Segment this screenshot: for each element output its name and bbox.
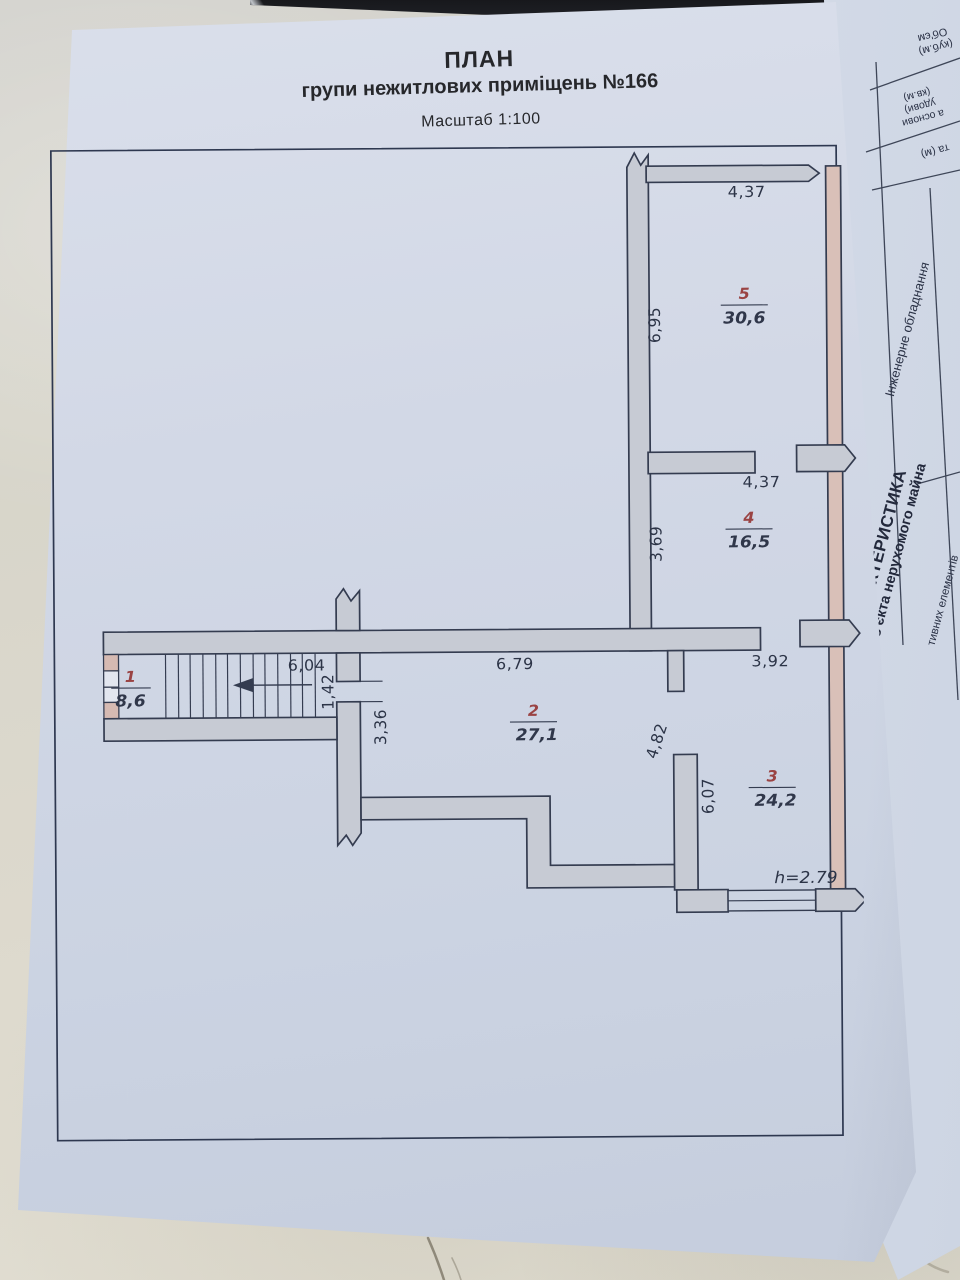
dim-opening-width: 3,92	[751, 652, 789, 671]
stair-arrow-head	[233, 678, 253, 692]
wall-room5-top	[646, 165, 819, 182]
table-row-line	[872, 170, 960, 190]
room4-number: 4	[742, 508, 754, 527]
window-room3-midline	[728, 900, 816, 901]
room3-number: 3	[766, 767, 777, 786]
room2-number: 2	[528, 701, 539, 720]
dim-room4-width: 4,37	[743, 472, 781, 491]
dim-room4-depth: 3,69	[646, 526, 666, 562]
room1-area: 8,6	[115, 692, 146, 711]
wall-room3-left	[674, 754, 698, 890]
window-pier-room5	[797, 445, 856, 472]
wall-rooms5-4-divider	[648, 452, 755, 474]
dim-passage-width: 1,42	[318, 674, 338, 710]
wall-room2-bottom	[361, 795, 677, 889]
dim-ceiling-height: h=2.79	[774, 868, 837, 887]
room2-area: 27,1	[516, 725, 558, 744]
wall-room3-bottom-left	[677, 890, 728, 913]
wall-rooms23-stub	[668, 651, 684, 692]
dim-room2-right-depth: 4,82	[641, 721, 671, 761]
plan-title-block: ПЛАН групи нежитлових приміщень №166 Мас…	[229, 39, 731, 137]
wall-stairhall-bottom	[104, 717, 337, 741]
exterior-wall-right	[826, 166, 846, 891]
dim-room3-left-depth: 6,07	[698, 778, 718, 814]
wall-room2-left-lower	[337, 702, 362, 846]
dim-room5-width: 4,37	[728, 182, 766, 201]
stair-window-block	[104, 655, 119, 671]
photo-scene: (куб.м) Об'єм а основи удови) (кв.м) та …	[0, 0, 960, 1280]
wall-rooms45-left	[627, 153, 652, 651]
wall-room2-left-upper	[336, 653, 360, 682]
dim-corridor-length: 6,04	[288, 656, 326, 675]
room1-number: 1	[125, 667, 136, 686]
wall-corridor-top	[103, 628, 760, 655]
window-pier-room4	[800, 620, 860, 647]
wall-stub-break	[336, 589, 360, 631]
room3-area: 24,2	[754, 791, 796, 810]
room5-area: 30,6	[723, 309, 766, 328]
room5-number: 5	[739, 284, 750, 303]
wall-room3-bottom-right	[816, 889, 866, 912]
room4-area: 16,5	[728, 533, 770, 552]
dim-room2-left-depth: 3,36	[371, 709, 391, 745]
dim-room5-depth: 6,95	[645, 307, 665, 343]
floor-plan-drawing: 1 8,6 2 27,1 3 24,2 4 16,5 5 30,6 4,37 6…	[46, 135, 865, 1149]
stair-window-block	[104, 671, 119, 687]
dim-room2-width: 6,79	[496, 654, 534, 673]
